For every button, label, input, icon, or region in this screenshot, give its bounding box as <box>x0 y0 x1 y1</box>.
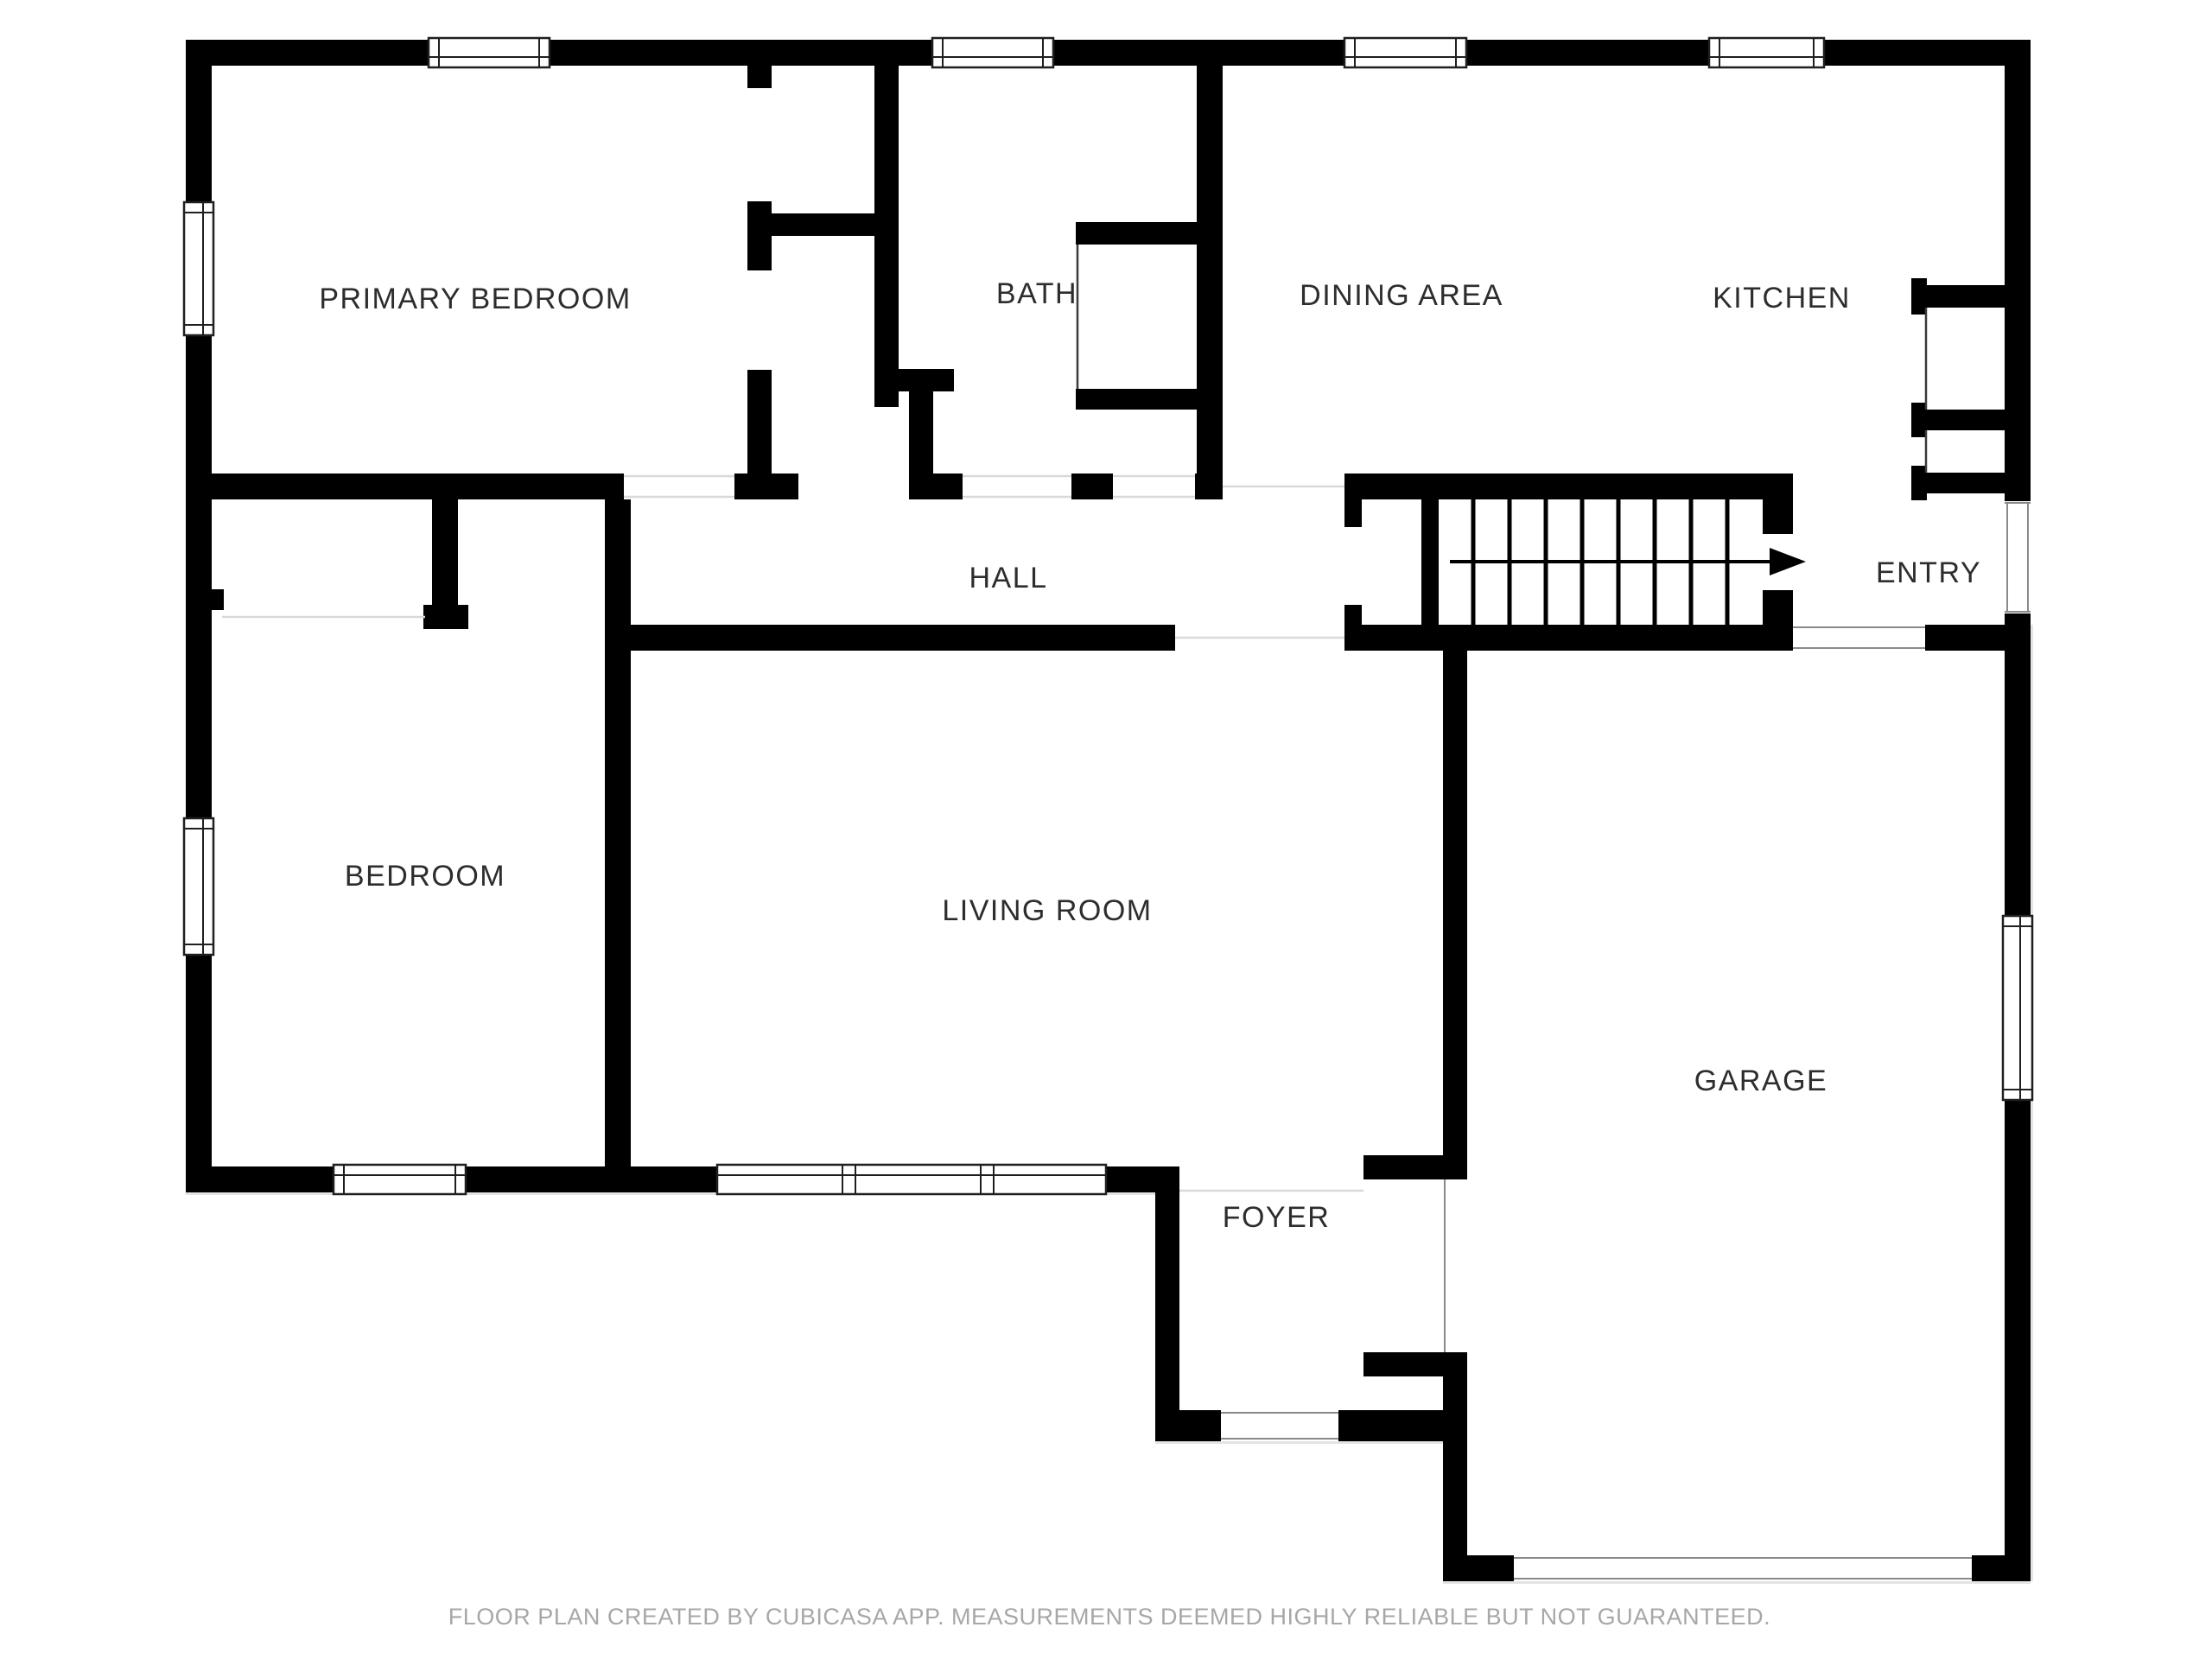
window-bath-top <box>932 38 1053 67</box>
stairs-direction-arrow <box>1450 548 1806 575</box>
floor-plan-canvas: PRIMARY BEDROOM BATH DINING AREA KITCHEN… <box>0 0 2212 1659</box>
window-dining-top <box>1344 38 1466 67</box>
window-living-room-bottom <box>717 1165 1106 1194</box>
window-primary-bedroom-top <box>429 38 550 67</box>
window-bedroom-bottom <box>334 1165 466 1194</box>
room-label-bath: BATH <box>996 277 1077 310</box>
room-label-hall: HALL <box>969 562 1047 594</box>
wall-right-upper <box>2005 40 2031 501</box>
wall-garage-bottom-right <box>1972 1555 2031 1581</box>
room-label-foyer: FOYER <box>1223 1201 1331 1234</box>
window-garage-right <box>2003 916 2032 1100</box>
room-label-garage: GARAGE <box>1694 1065 1827 1097</box>
room-label-kitchen: KITCHEN <box>1713 282 1851 315</box>
window-primary-bedroom-left <box>184 202 213 335</box>
room-label-dining-area: DINING AREA <box>1300 279 1503 312</box>
room-label-entry: ENTRY <box>1876 556 1981 589</box>
garage-door-opening <box>1514 1558 1972 1579</box>
wall-right-middle <box>2005 613 2031 916</box>
floor-shadow-lines <box>186 625 2033 1584</box>
window-bedroom-left <box>184 818 213 955</box>
room-label-living-room: LIVING ROOM <box>942 894 1152 927</box>
entry-garage-threshold <box>1793 627 1925 648</box>
room-labels: PRIMARY BEDROOM BATH DINING AREA KITCHEN… <box>319 277 1981 1234</box>
outer-walls <box>186 40 2031 1581</box>
wall-right-lower <box>2005 1100 2031 1581</box>
room-label-bedroom: BEDROOM <box>345 860 505 893</box>
window-kitchen-top <box>1709 38 1824 67</box>
floor-plan-page: PRIMARY BEDROOM BATH DINING AREA KITCHEN… <box>0 0 2212 1659</box>
room-label-primary-bedroom: PRIMARY BEDROOM <box>319 283 631 315</box>
entry-door-opening <box>2005 503 2031 612</box>
staircase <box>1450 499 1806 625</box>
footer-disclaimer: FLOOR PLAN CREATED BY CUBICASA APP. MEAS… <box>448 1604 1770 1630</box>
front-door-threshold <box>1221 1413 1338 1439</box>
